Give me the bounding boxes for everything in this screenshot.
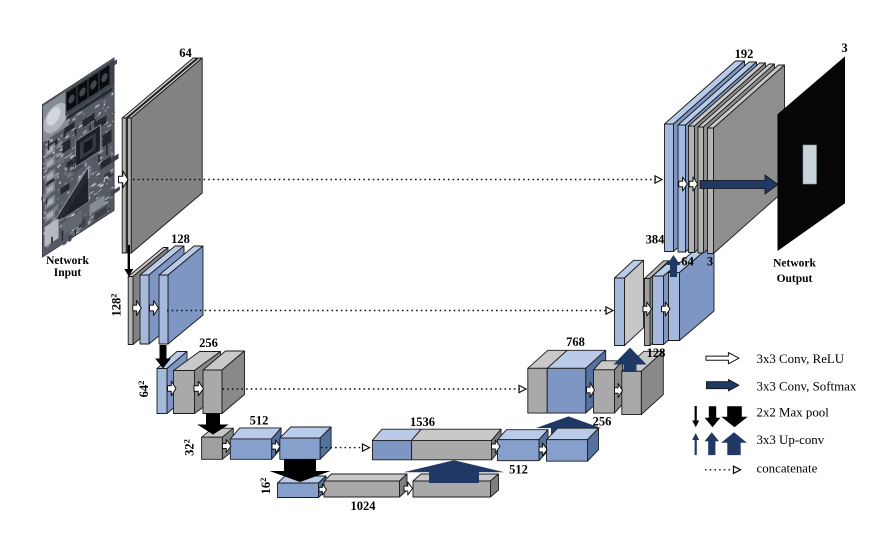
svg-text:162: 162 — [258, 478, 273, 495]
svg-text:3: 3 — [707, 255, 713, 269]
svg-text:64: 64 — [681, 255, 694, 269]
svg-text:3x3 Conv, ReLU: 3x3 Conv, ReLU — [757, 352, 845, 366]
svg-text:384: 384 — [646, 233, 666, 247]
svg-text:2x2 Max pool: 2x2 Max pool — [757, 406, 830, 420]
svg-text:Network: Network — [46, 255, 89, 267]
svg-text:128: 128 — [171, 232, 190, 246]
svg-text:128: 128 — [647, 346, 666, 360]
svg-text:3: 3 — [841, 41, 847, 55]
svg-text:3x3 Conv, Softmax: 3x3 Conv, Softmax — [757, 380, 857, 394]
svg-text:1282: 1282 — [109, 294, 124, 317]
svg-text:256: 256 — [199, 336, 218, 350]
svg-text:512: 512 — [250, 414, 269, 428]
svg-text:concatenate: concatenate — [757, 462, 818, 476]
svg-text:322: 322 — [182, 439, 197, 456]
svg-text:1536: 1536 — [410, 415, 435, 429]
svg-text:192: 192 — [735, 47, 754, 61]
svg-text:64: 64 — [179, 46, 192, 60]
svg-text:642: 642 — [136, 381, 151, 398]
svg-text:1024: 1024 — [351, 499, 377, 513]
svg-text:512: 512 — [509, 463, 528, 477]
svg-text:Output: Output — [777, 273, 813, 285]
svg-text:3x3 Up-conv: 3x3 Up-conv — [757, 433, 825, 447]
svg-text:256: 256 — [593, 415, 612, 429]
svg-text:768: 768 — [566, 335, 585, 349]
svg-text:Input: Input — [54, 267, 82, 279]
svg-text:Network: Network — [773, 258, 816, 270]
